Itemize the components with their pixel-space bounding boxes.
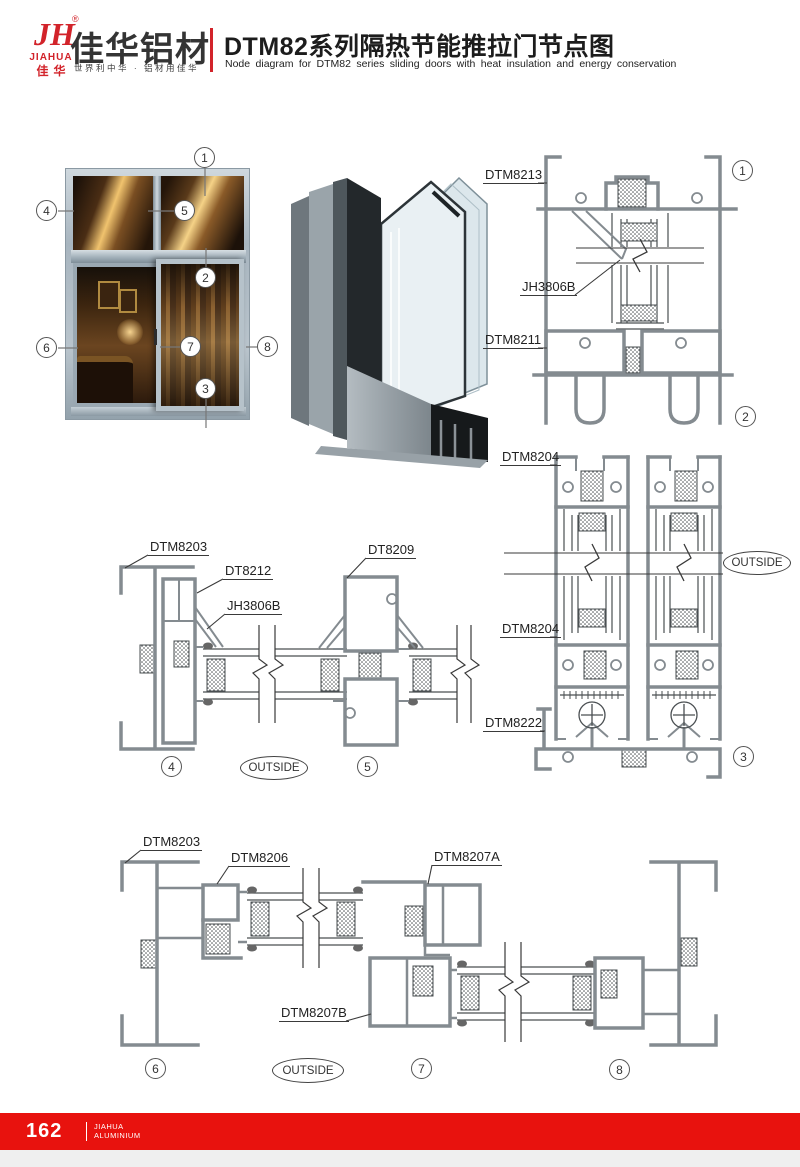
door-photo: [65, 168, 250, 420]
callout-4: 4: [36, 200, 57, 221]
mid-horizontal-section-drawing: [95, 535, 485, 785]
label-jh3806b-mid: JH3806B: [225, 599, 282, 615]
callout-3: 3: [195, 378, 216, 399]
label-jh3806b: JH3806B: [520, 280, 577, 296]
section-callout-8: 8: [609, 1059, 630, 1080]
page-subtitle: Node diagram for DTM82 series sliding do…: [225, 58, 695, 70]
label-dtm8213: DTM8213: [483, 168, 544, 184]
section-callout-6: 6: [145, 1058, 166, 1079]
section-callout-5: 5: [357, 756, 378, 777]
transom-mullion: [153, 176, 161, 250]
outside-marker-mid: OUTSIDE: [240, 756, 308, 780]
label-dtm8207b: DTM8207B: [279, 1006, 349, 1022]
callout-5: 5: [174, 200, 195, 221]
callout-8: 8: [257, 336, 278, 357]
footer-strip: [0, 1150, 800, 1167]
company-tagline: 世界利中华 · 铝材用佳华: [74, 62, 199, 74]
footer-divider: [86, 1122, 87, 1141]
label-dtm8203-mid: DTM8203: [148, 540, 209, 556]
label-dt8209: DT8209: [366, 543, 416, 559]
label-dtm8222: DTM8222: [483, 716, 544, 732]
section-callout-2: 2: [735, 406, 756, 427]
callout-7: 7: [180, 336, 201, 357]
bottom-horizontal-section-drawing: [95, 830, 775, 1080]
label-dtm8204-top: DTM8204: [500, 450, 561, 466]
catalog-page: JH ® JIAHUA 佳华 佳华铝材 世界利中华 · 铝材用佳华 DTM82系…: [0, 0, 800, 1167]
section-callout-1: 1: [732, 160, 753, 181]
sofa: [77, 356, 133, 403]
page-footer: 162 JIAHUA ALUMINIUM: [0, 1113, 800, 1150]
page-number: 162: [26, 1120, 62, 1143]
outside-marker-right: OUTSIDE: [723, 551, 791, 575]
label-dtm8206: DTM8206: [229, 851, 290, 867]
page-header: JH ® JIAHUA 佳华 佳华铝材 世界利中华 · 铝材用佳华 DTM82系…: [0, 0, 800, 95]
footer-brand-line2: ALUMINIUM: [94, 1131, 141, 1140]
callout-2: 2: [195, 267, 216, 288]
label-dtm8211: DTM8211: [483, 333, 543, 349]
section-callout-4: 4: [161, 756, 182, 777]
wall-picture: [119, 289, 137, 313]
callout-6: 6: [36, 337, 57, 358]
section-callout-7: 7: [411, 1058, 432, 1079]
label-dt8212: DT8212: [223, 564, 273, 580]
label-dtm8203-bottom: DTM8203: [141, 835, 202, 851]
section-callout-3: 3: [733, 746, 754, 767]
door-panel-fixed: [73, 263, 161, 407]
label-dtm8207a: DTM8207A: [432, 850, 502, 866]
header-divider: [210, 28, 213, 72]
door-handle: [154, 329, 157, 345]
footer-brand-line1: JIAHUA: [94, 1122, 141, 1131]
wall-picture: [98, 281, 120, 309]
outside-marker-bottom: OUTSIDE: [272, 1058, 344, 1083]
callout-1: 1: [194, 147, 215, 168]
lamp-glow: [117, 319, 143, 345]
footer-brand: JIAHUA ALUMINIUM: [94, 1122, 141, 1140]
transom-glass-left: [73, 176, 153, 250]
profile-3d-render: [283, 158, 495, 470]
label-dtm8204-bottom: DTM8204: [500, 622, 561, 638]
